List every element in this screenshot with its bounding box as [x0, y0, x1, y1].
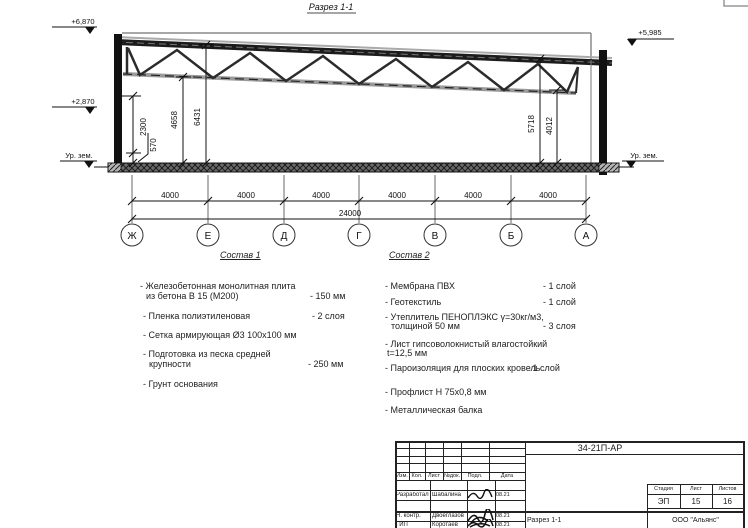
elevation-arrow-icon: [85, 27, 95, 34]
doc-number: 34-21П-АР: [525, 443, 675, 453]
stamp-header: Изм.: [395, 473, 409, 479]
list-item: - Пленка полиэтиленовая: [143, 311, 250, 321]
ground-level-label: Ур. зем.: [630, 151, 658, 160]
elevation-label: +5,985: [638, 28, 661, 37]
list-item: - Профлист Н 75х0,8 мм: [385, 387, 486, 397]
stamp-role: Разработал: [396, 492, 430, 498]
list-item-value: - 2 слоя: [312, 311, 345, 321]
left-wall: [114, 34, 122, 172]
dimension-label: 4658: [170, 111, 179, 129]
frame-corner-mark: [724, 0, 748, 6]
stage-header: Стадия: [647, 486, 680, 492]
stamp-role: Н. контр.: [396, 513, 430, 519]
list-item: - Пароизоляция для плоских кровель: [385, 363, 540, 373]
floor-slab: [94, 163, 634, 172]
list-item: - Металлическая балка: [385, 405, 482, 415]
list-item-value: - 1 слой: [543, 297, 576, 307]
list-item-value: - 1 слой: [527, 363, 560, 373]
organization-name: ООО "Альянс": [647, 517, 744, 524]
list-item-line2: из бетона В 15 (М200): [146, 291, 238, 301]
stamp-name: Двоеглазов: [432, 513, 467, 519]
vertical-dimensions: [122, 45, 565, 163]
stamp-name: Шабалина: [432, 492, 467, 498]
sheet-value: 15: [680, 497, 712, 506]
axis-label: Г: [356, 231, 362, 242]
material-list-1: Состав 1 - Железобетонная монолитная пли…: [140, 248, 375, 398]
sheets-value: 16: [712, 497, 743, 506]
stamp-header: Подл.: [461, 473, 489, 479]
list-item-value: - 3 слоя: [543, 321, 576, 331]
bay-dimension-label: 4000: [388, 191, 406, 200]
stamp-header: №док.: [443, 473, 461, 479]
building-structure: [94, 33, 634, 175]
list-item: - Мембрана ПВХ: [385, 281, 455, 291]
section-title: Разрез 1-1: [309, 2, 354, 12]
material-list-2: Состав 2 - Мембрана ПВХ - 1 слой - Геоте…: [385, 248, 610, 418]
axis-label: А: [583, 231, 590, 242]
elevation-arrow-icon: [84, 161, 94, 168]
axis-label: Ж: [127, 231, 137, 242]
section-drawing: Разрез 1-1 +6,870: [0, 0, 748, 248]
stamp-name: Коротаев: [432, 522, 467, 528]
elevation-marks: +6,870 +2,870 Ур. зем. +5,985 Ур. зем.: [52, 17, 674, 168]
stage-value: ЭП: [647, 497, 680, 506]
right-wall: [599, 50, 607, 175]
stamp-date: 08.21: [496, 513, 524, 519]
elevation-label: +2,870: [71, 97, 94, 106]
sheet-header: Лист: [680, 486, 712, 492]
list-item-line2: крупности: [149, 359, 191, 369]
bay-dimension-label: 4000: [237, 191, 255, 200]
list-item: - Сетка армирующая Ø3 100х100 мм: [143, 330, 297, 340]
list-item: - Грунт основания: [143, 379, 218, 389]
stamp-header: Кол.: [409, 473, 425, 479]
list-item: - Геотекстиль: [385, 297, 441, 307]
axis-label: Б: [508, 231, 515, 242]
signature: [466, 489, 496, 501]
elevation-label: +6,870: [71, 17, 94, 26]
axis-label: Д: [281, 231, 288, 242]
stamp-header: Дата: [489, 473, 525, 479]
dimension-label: 4012: [545, 117, 554, 135]
dimension-label: 2300: [139, 118, 148, 136]
axis-bubbles: Ж Е Д Г В Б А: [121, 224, 597, 246]
bay-dimension-label: 4000: [161, 191, 179, 200]
ground-level-label: Ур. зем.: [65, 151, 93, 160]
stamp-date: 08.21: [496, 522, 524, 528]
list-item-line2: t=12,5 мм: [387, 348, 427, 358]
axis-label: Е: [205, 231, 212, 242]
stamp-header: Лист: [425, 473, 443, 479]
axis-label: В: [432, 231, 439, 242]
dimension-label: 5718: [527, 115, 536, 133]
title-block: 34-21П-АР Изм. Кол. Лист №док. Подл. Дат…: [395, 441, 748, 528]
list-heading: Состав 2: [389, 250, 430, 260]
list-heading: Состав 1: [220, 250, 261, 260]
elevation-arrow-icon: [627, 39, 637, 46]
dimension-label: 6431: [193, 108, 202, 126]
total-dimension-label: 24000: [339, 209, 362, 218]
bay-dimension-label: 4000: [312, 191, 330, 200]
signature: [466, 519, 496, 528]
list-item-value: - 1 слой: [543, 281, 576, 291]
list-item-value: - 150 мм: [310, 291, 345, 301]
list-item-line2: толщиной 50 мм: [391, 321, 460, 331]
list-item-value: - 250 мм: [308, 359, 343, 369]
list-item: - Подготовка из песка средней: [143, 349, 271, 359]
dimension-label: 570: [149, 138, 158, 152]
stamp-date: 08.21: [496, 492, 524, 498]
list-item: - Железобетонная монолитная плита: [140, 281, 296, 291]
stamp-role: ГИП: [396, 522, 430, 528]
bay-dimension-label: 4000: [464, 191, 482, 200]
sheets-header: Листов: [712, 486, 743, 492]
elevation-arrow-icon: [85, 107, 95, 114]
stamp-drawing-title: Разрез 1-1: [527, 517, 561, 524]
bay-dimension-label: 4000: [539, 191, 557, 200]
